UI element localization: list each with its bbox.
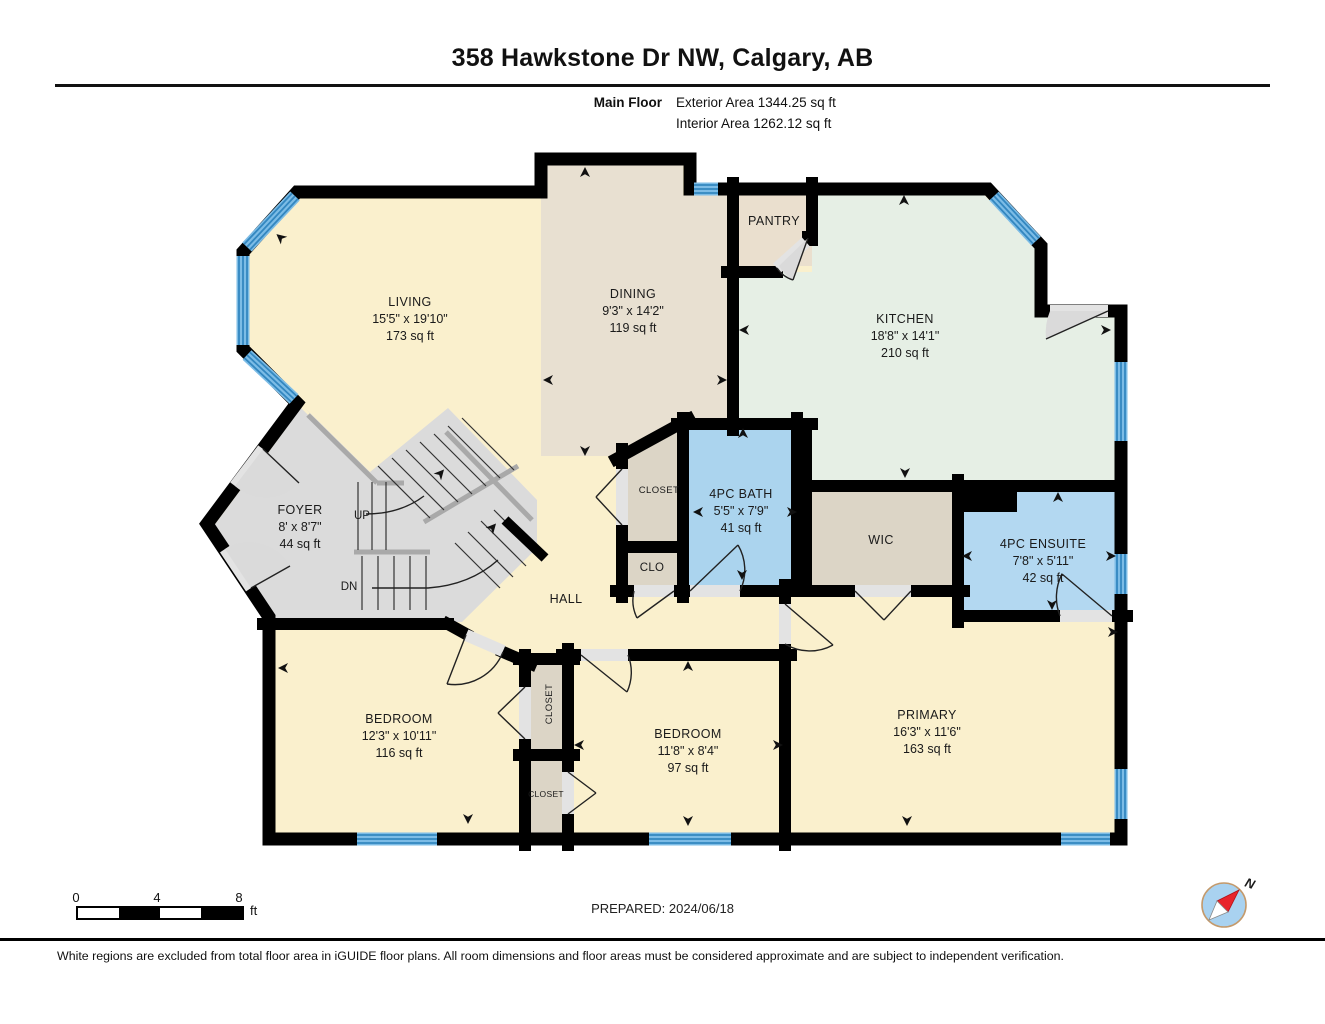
compass-icon: N [1194,872,1258,936]
closet-bed2-label: CLOSET [528,789,564,799]
disclaimer-text: White regions are excluded from total fl… [57,949,1277,963]
living-label: LIVING [388,295,431,309]
window-top [694,185,718,193]
closet-hall-label: CLOSET [639,485,679,496]
bath-label: 4PC BATH [709,487,772,501]
clo-label: CLO [640,562,665,574]
foyer-dims: 8' x 8'7" [278,520,321,534]
bedroom1-label: BEDROOM [365,712,432,726]
closet-bed1-label: CLOSET [544,684,555,724]
foyer-label: FOYER [277,503,322,517]
window-ensuite-right [1117,554,1125,594]
kitchen-label: KITCHEN [876,312,934,326]
bedroom2-area: 97 sq ft [668,761,710,775]
floor-plan-page: 358 Hawkstone Dr NW, Calgary, AB Main Fl… [0,0,1325,1024]
floor-plan-drawing: LIVING 15'5" x 19'10" 173 sq ft DINING 9… [0,0,1325,1024]
dining-label: DINING [610,287,656,301]
bedroom2-dims: 11'8" x 8'4" [658,744,719,758]
primary-area: 163 sq ft [903,742,951,756]
stairs-down-label: DN [341,581,358,593]
living-area: 173 sq ft [386,329,434,343]
compass-north-label: N [1243,875,1258,893]
window-primary-right [1117,769,1125,819]
bedroom2-label: BEDROOM [654,727,721,741]
hall-label: HALL [550,592,583,606]
pantry-label: PANTRY [748,214,800,228]
floor-closet-strip [525,655,568,839]
foyer-area: 44 sq ft [280,537,322,551]
window-bay-left [239,256,247,345]
ensuite-area: 42 sq ft [1023,571,1065,585]
prepared-date: PREPARED: 2024/06/18 [0,901,1325,916]
window-kitchen-right [1117,362,1125,441]
window-primary-bottom [1061,835,1110,843]
wic-label: WIC [868,533,894,547]
living-dims: 15'5" x 19'10" [372,312,448,326]
bath-area: 41 sq ft [721,521,763,535]
bedroom1-area: 116 sq ft [375,746,423,760]
bedroom1-dims: 12'3" x 10'11" [362,729,437,743]
footer-divider [0,938,1325,941]
stairs-up-label: UP [354,510,370,522]
window-bedroom2-bottom [649,835,731,843]
dining-area: 119 sq ft [609,321,657,335]
kitchen-area: 210 sq ft [881,346,929,360]
kitchen-dims: 18'8" x 14'1" [871,329,940,343]
primary-label: PRIMARY [897,708,957,722]
dining-dims: 9'3" x 14'2" [602,304,664,318]
window-bedroom1-bottom [357,835,437,843]
ensuite-label: 4PC ENSUITE [1000,537,1086,551]
ensuite-dims: 7'8" x 5'11" [1013,554,1074,568]
bath-dims: 5'5" x 7'9" [714,504,769,518]
primary-dims: 16'3" x 11'6" [893,725,961,739]
